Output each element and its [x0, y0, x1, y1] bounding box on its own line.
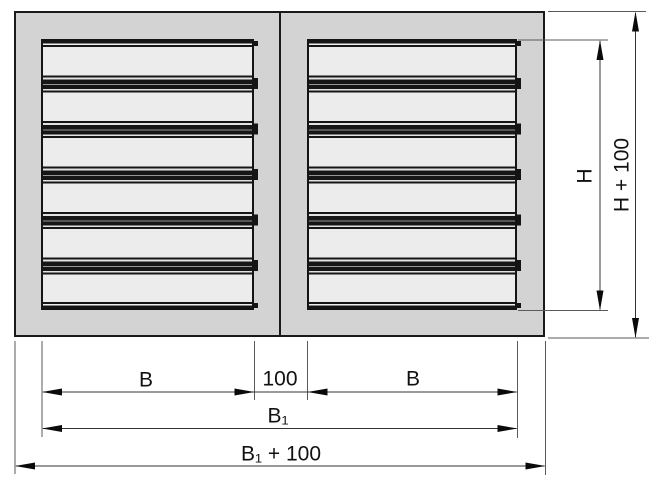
arrow-h-100-top: [632, 12, 639, 32]
arrow-b1-left: [42, 425, 62, 432]
arrow-b1-100-right: [526, 463, 546, 470]
dim-label-b1-plus-100: B₁ + 100: [241, 444, 321, 465]
louver-slats: [43, 47, 252, 302]
dim-label-b-right: B: [406, 369, 420, 390]
slat-end-mark-bottom: [254, 303, 258, 308]
arrow-b1-100-left: [15, 463, 35, 470]
arrow-h-top: [597, 40, 604, 60]
panel-bottom-rail: [43, 302, 252, 308]
slat-end-mark-top: [517, 41, 521, 46]
louver-slats: [309, 47, 515, 302]
technical-drawing-canvas: B 100 B B₁ B₁ + 100 H H + 100: [0, 0, 660, 498]
louver-panel-left: [41, 39, 254, 310]
arrow-b-right-in: [308, 389, 328, 396]
arrow-b-left-in: [235, 389, 255, 396]
slat-end-marks: [517, 47, 521, 302]
arrow-b1-right: [498, 425, 518, 432]
arrow-b-right-out: [498, 389, 518, 396]
louver-panel-right: [307, 39, 517, 310]
arrow-h-bottom: [597, 291, 604, 311]
slat-end-mark-top: [254, 41, 258, 46]
dim-label-h: H: [575, 168, 596, 183]
panel-bottom-rail: [309, 302, 515, 308]
dim-label-gap-100: 100: [262, 369, 297, 390]
dim-label-h-plus-100: H + 100: [612, 138, 633, 212]
arrow-h-100-bottom: [632, 318, 639, 338]
slat-end-mark-bottom: [517, 303, 521, 308]
slat-end-marks: [254, 47, 258, 302]
arrow-b-left-out: [42, 389, 62, 396]
dim-label-b-left: B: [139, 370, 153, 391]
plate-joint-line: [279, 11, 281, 337]
dim-label-b1: B₁: [267, 406, 288, 427]
